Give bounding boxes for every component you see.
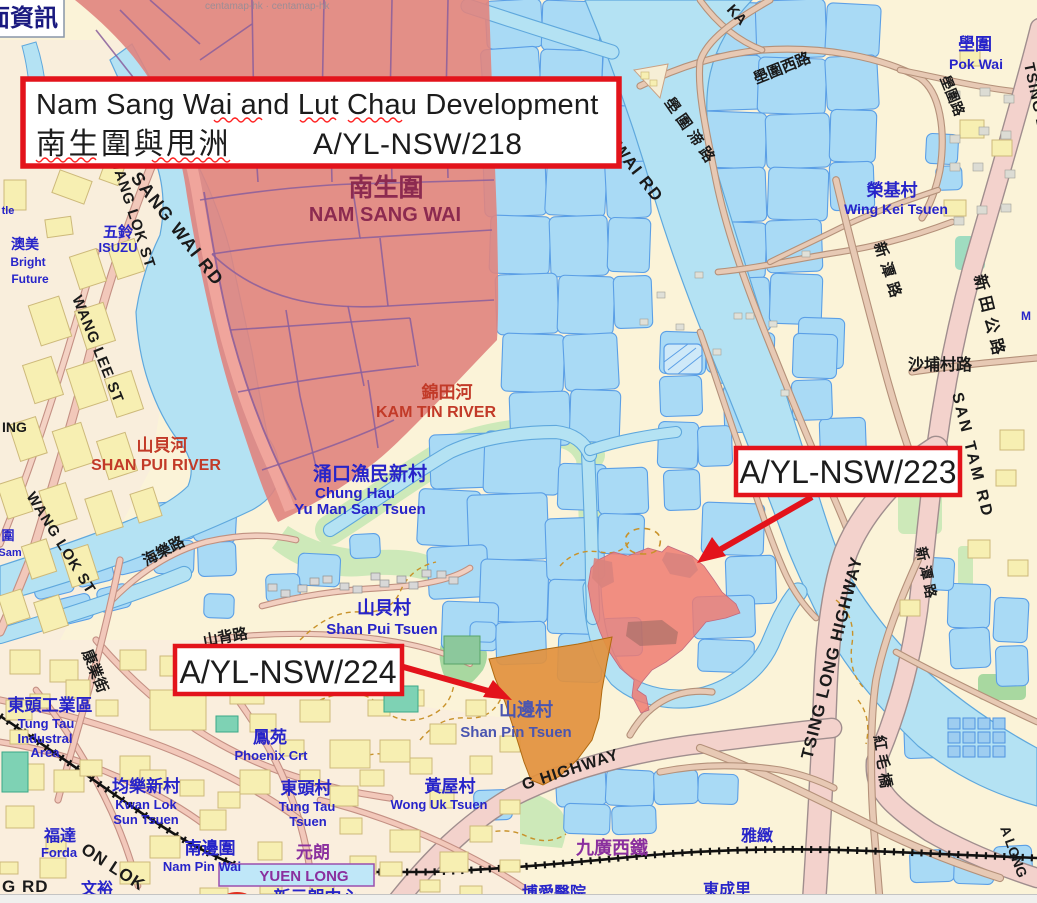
- svg-text:Tsuen: Tsuen: [289, 814, 326, 829]
- svg-text:Forda: Forda: [41, 845, 78, 860]
- svg-text:Nam Sang Wai and Lut Chau Deve: Nam Sang Wai and Lut Chau Development: [36, 89, 598, 121]
- svg-text:雅緻: 雅緻: [740, 826, 773, 845]
- svg-text:Yu Man San Tsuen: Yu Man San Tsuen: [294, 501, 425, 518]
- svg-text:Tung Tau: Tung Tau: [279, 799, 336, 814]
- svg-text:Bright: Bright: [10, 255, 45, 269]
- svg-text:NAM SANG WAI: NAM SANG WAI: [309, 204, 461, 226]
- svg-text:福達: 福達: [43, 826, 76, 845]
- svg-text:tle: tle: [2, 205, 15, 217]
- svg-text:ISUZU: ISUZU: [99, 240, 138, 255]
- svg-text:Nam Pin Wai: Nam Pin Wai: [163, 859, 241, 874]
- svg-text:山貝村: 山貝村: [357, 597, 411, 618]
- svg-text:均樂新村: 均樂新村: [112, 776, 180, 796]
- svg-text:YUEN LONG: YUEN LONG: [259, 868, 348, 885]
- svg-text:Industral: Industral: [18, 731, 73, 746]
- svg-text:Phoenix Crt: Phoenix Crt: [235, 748, 309, 763]
- svg-text:Future: Future: [11, 272, 49, 286]
- svg-text:Shan Pui Tsuen: Shan Pui Tsuen: [326, 621, 437, 638]
- svg-text:Pok Wai: Pok Wai: [949, 56, 1003, 72]
- svg-text:A/YL-NSW/218: A/YL-NSW/218: [313, 128, 522, 161]
- svg-text:榮基村: 榮基村: [867, 180, 918, 200]
- svg-text:centamap-hk · centamap-hk: centamap-hk · centamap-hk: [205, 1, 331, 12]
- svg-text:Tung Tau: Tung Tau: [18, 716, 75, 731]
- svg-text:山貝河: 山貝河: [137, 436, 188, 455]
- svg-text:澳美: 澳美: [11, 236, 40, 252]
- svg-text:涌口漁民新村: 涌口漁民新村: [313, 462, 427, 485]
- svg-text:A/YL-NSW/224: A/YL-NSW/224: [180, 654, 397, 690]
- svg-text:圍: 圍: [1, 528, 14, 543]
- svg-text:南生圍: 南生圍: [348, 174, 423, 202]
- svg-text:Wong Uk Tsuen: Wong Uk Tsuen: [390, 797, 487, 812]
- svg-text:南生圍與甩洲: 南生圍與甩洲: [36, 128, 231, 161]
- svg-text:東頭工業區: 東頭工業區: [8, 695, 93, 715]
- svg-text:元朗: 元朗: [296, 842, 330, 862]
- svg-text:南邊圍: 南邊圍: [185, 838, 236, 858]
- svg-text:Area: Area: [31, 745, 61, 760]
- svg-text:山邊村: 山邊村: [499, 699, 553, 720]
- svg-text:沙埔村路: 沙埔村路: [908, 355, 973, 374]
- svg-text:九廣西鐵: 九廣西鐵: [575, 837, 648, 858]
- svg-text:G RD: G RD: [2, 877, 49, 896]
- svg-text:M: M: [1021, 309, 1031, 323]
- svg-text:A/YL-NSW/223: A/YL-NSW/223: [740, 454, 957, 490]
- svg-text:黃屋村: 黃屋村: [424, 776, 476, 796]
- svg-text:Kwan Lok: Kwan Lok: [115, 797, 177, 812]
- svg-text:KAM TIN RIVER: KAM TIN RIVER: [376, 404, 496, 421]
- svg-text:Sam: Sam: [0, 547, 22, 559]
- svg-text:壆圍: 壆圍: [958, 35, 992, 54]
- svg-text:面資訊: 面資訊: [0, 4, 58, 32]
- svg-text:Wing Kei Tsuen: Wing Kei Tsuen: [844, 201, 948, 217]
- svg-text:SHAN PUI RIVER: SHAN PUI RIVER: [91, 457, 221, 474]
- svg-text:錦田河: 錦田河: [422, 382, 473, 402]
- svg-text:Chung Hau: Chung Hau: [315, 485, 395, 502]
- svg-text:Shan Pin Tsuen: Shan Pin Tsuen: [460, 724, 571, 741]
- svg-text:鳳苑: 鳳苑: [253, 727, 287, 747]
- svg-text:Sun Tsuen: Sun Tsuen: [113, 812, 179, 827]
- svg-text:東頭村: 東頭村: [281, 778, 332, 798]
- svg-text:ING: ING: [2, 419, 27, 435]
